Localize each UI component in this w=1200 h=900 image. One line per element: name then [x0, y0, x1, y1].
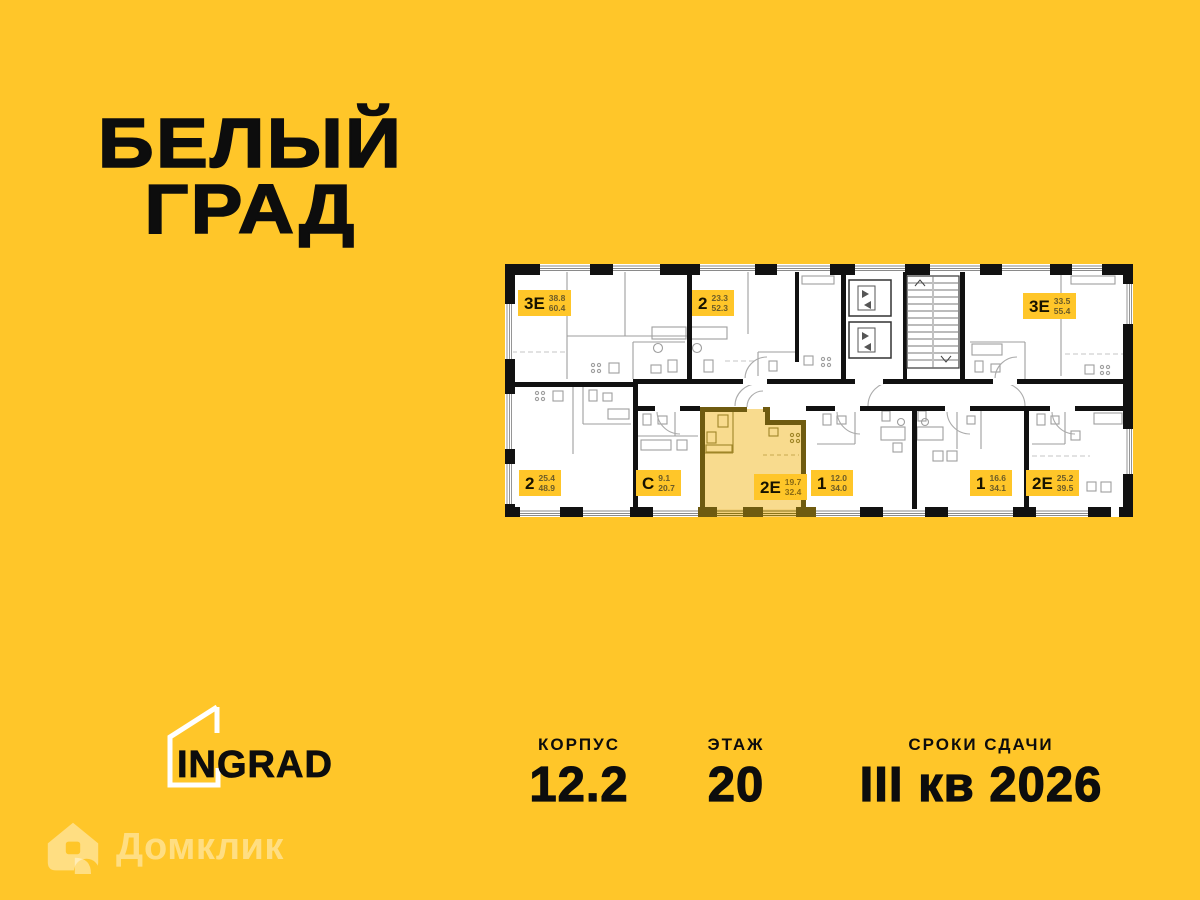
- unit-badge-1-34[interactable]: 1 12.034.0: [811, 470, 853, 496]
- unit-area-living: 25.2: [1057, 473, 1074, 483]
- unit-badge-2e-32-highlighted[interactable]: 2Е 19.732.4: [754, 474, 807, 500]
- unit-area-total: 52.3: [711, 303, 728, 313]
- stat-building: КОРПУС 12.2: [529, 735, 628, 810]
- unit-type: 2Е: [760, 479, 781, 496]
- unit-area-total: 34.1: [989, 483, 1006, 493]
- stat-delivery: СРОКИ СДАЧИ III кв 2026: [860, 735, 1103, 810]
- unit-area-living: 19.7: [785, 477, 802, 487]
- unit-area-total: 39.5: [1057, 483, 1074, 493]
- project-title: БЕЛЫЙ ГРАД: [84, 110, 417, 242]
- domclick-watermark: Домклик: [44, 820, 284, 874]
- unit-type: 3Е: [524, 295, 545, 312]
- floorplan: 3Е 38.860.4 2 23.352.3 3Е 33.555.4 2 25.…: [505, 264, 1133, 518]
- unit-area-total: 48.9: [538, 483, 555, 493]
- unit-area-living: 23.3: [711, 293, 728, 303]
- unit-badge-3e-55[interactable]: 3Е 33.555.4: [1023, 293, 1076, 319]
- project-title-line2: ГРАД: [84, 176, 417, 242]
- unit-badge-2-52[interactable]: 2 23.352.3: [692, 290, 734, 316]
- unit-area-living: 12.0: [830, 473, 847, 483]
- unit-type: 1: [976, 475, 985, 492]
- page-background: БЕЛЫЙ ГРАД: [0, 0, 1200, 900]
- stat-delivery-value: III кв 2026: [860, 761, 1103, 810]
- unit-area-living: 9.1: [658, 473, 675, 483]
- unit-area-living: 33.5: [1054, 296, 1071, 306]
- unit-area-total: 32.4: [785, 487, 802, 497]
- unit-area-living: 38.8: [549, 293, 566, 303]
- stat-floor-value: 20: [707, 761, 764, 810]
- ingrad-logo-text: INGRAD: [177, 744, 333, 787]
- stat-floor-label: ЭТАЖ: [707, 735, 764, 755]
- project-title-line1: БЕЛЫЙ: [84, 110, 417, 176]
- stat-delivery-label: СРОКИ СДАЧИ: [860, 735, 1103, 755]
- domclick-house-icon: [44, 820, 102, 874]
- unit-area-total: 20.7: [658, 483, 675, 493]
- unit-badge-3e-60[interactable]: 3Е 38.860.4: [518, 290, 571, 316]
- stat-building-value: 12.2: [529, 761, 628, 810]
- unit-area-total: 60.4: [549, 303, 566, 313]
- stat-floor: ЭТАЖ 20: [707, 735, 764, 810]
- unit-badge-1-34-1[interactable]: 1 16.634.1: [970, 470, 1012, 496]
- unit-type: 2: [698, 295, 707, 312]
- unit-type: 2Е: [1032, 475, 1053, 492]
- unit-badge-2e-39[interactable]: 2Е 25.239.5: [1026, 470, 1079, 496]
- unit-area-total: 34.0: [830, 483, 847, 493]
- unit-type: С: [642, 475, 654, 492]
- unit-area-living: 16.6: [989, 473, 1006, 483]
- domclick-watermark-text: Домклик: [116, 826, 284, 869]
- unit-type: 3Е: [1029, 298, 1050, 315]
- unit-area-total: 55.4: [1054, 306, 1071, 316]
- unit-badge-2-48[interactable]: 2 25.448.9: [519, 470, 561, 496]
- unit-area-living: 25.4: [538, 473, 555, 483]
- unit-badge-studio[interactable]: С 9.120.7: [636, 470, 681, 496]
- unit-type: 2: [525, 475, 534, 492]
- stat-building-label: КОРПУС: [529, 735, 628, 755]
- unit-type: 1: [817, 475, 826, 492]
